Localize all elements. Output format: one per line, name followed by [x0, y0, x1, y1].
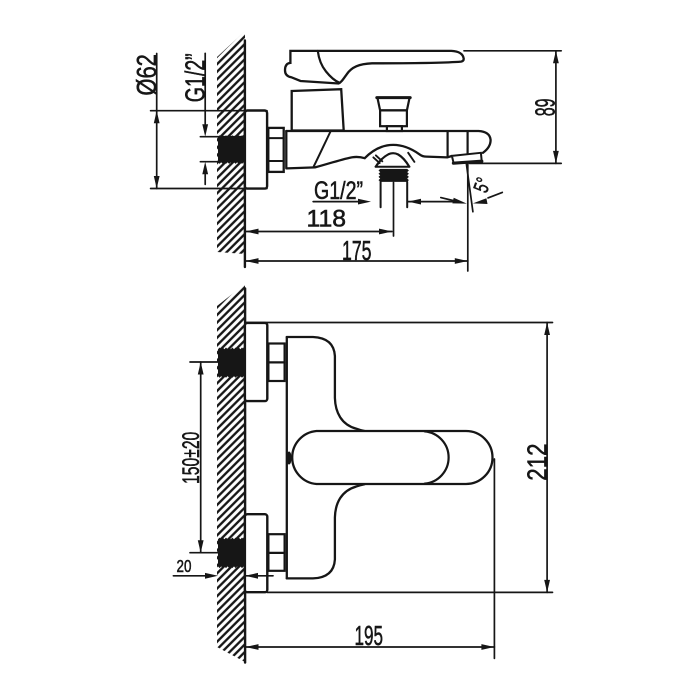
svg-text:212: 212: [521, 444, 552, 481]
svg-text:175: 175: [342, 235, 372, 266]
svg-text:195: 195: [355, 620, 384, 651]
svg-text:89: 89: [530, 99, 561, 117]
svg-text:20: 20: [177, 556, 192, 576]
svg-text:G1/2”: G1/2”: [179, 53, 210, 102]
svg-text:150±20: 150±20: [178, 432, 205, 484]
svg-text:118: 118: [307, 206, 347, 233]
svg-text:Ø62: Ø62: [131, 54, 162, 96]
svg-text:G1/2”: G1/2”: [314, 177, 363, 205]
